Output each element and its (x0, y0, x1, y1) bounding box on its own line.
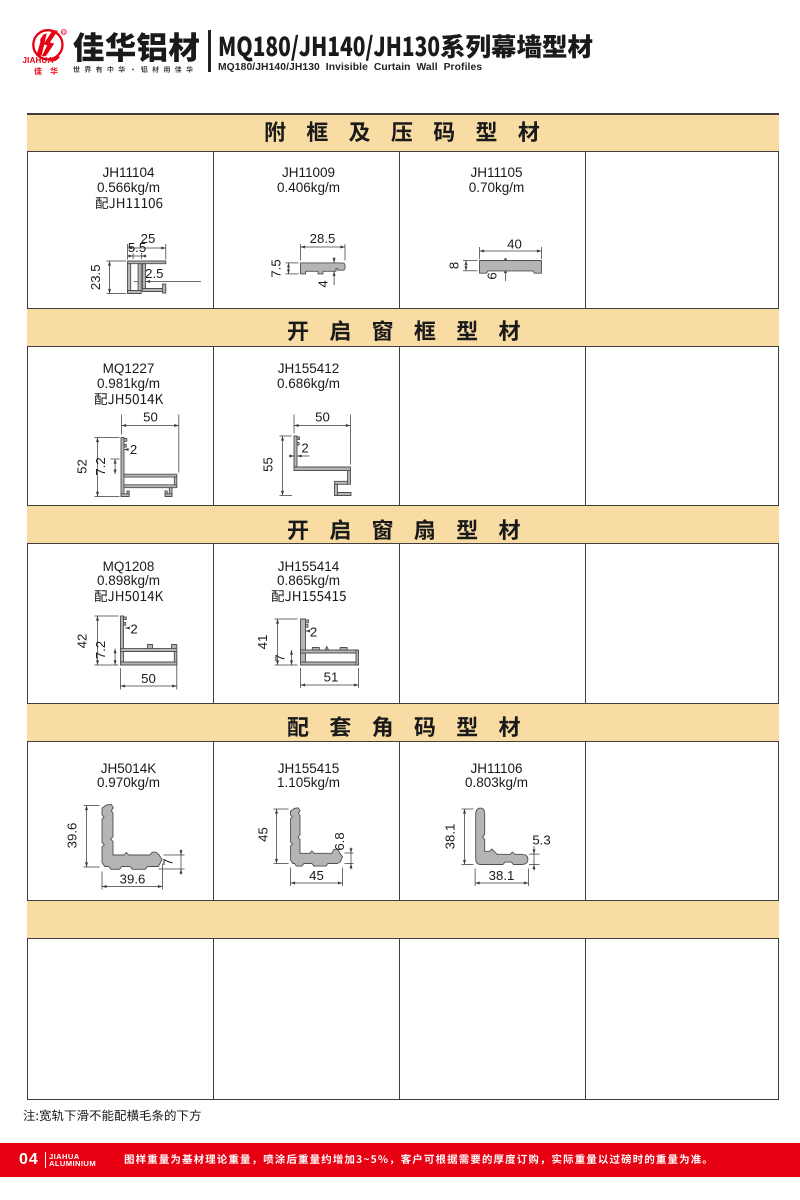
svg-text:2: 2 (129, 442, 136, 457)
svg-text:23.5: 23.5 (88, 264, 103, 290)
svg-text:7: 7 (272, 654, 287, 661)
svg-text:R: R (62, 30, 65, 35)
svg-text:42: 42 (74, 634, 89, 649)
svg-text:50: 50 (143, 409, 158, 424)
svg-text:2: 2 (130, 622, 137, 637)
svg-text:51: 51 (323, 670, 338, 685)
svg-text:39.6: 39.6 (64, 822, 79, 848)
svg-text:2: 2 (301, 440, 308, 455)
svg-text:55: 55 (260, 457, 275, 472)
svg-text:6.8: 6.8 (332, 832, 347, 850)
svg-text:7.2: 7.2 (93, 641, 108, 659)
svg-text:5.3: 5.3 (532, 832, 550, 847)
svg-text:52: 52 (74, 459, 89, 474)
svg-text:45: 45 (309, 868, 324, 883)
svg-text:45: 45 (255, 827, 270, 842)
svg-text:38.1: 38.1 (488, 868, 514, 883)
svg-text:40: 40 (507, 236, 522, 251)
svg-text:39.6: 39.6 (119, 871, 145, 886)
svg-text:38.1: 38.1 (442, 823, 457, 849)
svg-text:50: 50 (315, 409, 330, 424)
svg-text:5.5: 5.5 (127, 240, 145, 255)
svg-text:8: 8 (446, 261, 461, 268)
svg-text:7.2: 7.2 (93, 457, 108, 475)
svg-text:2.5: 2.5 (145, 266, 163, 281)
svg-text:41: 41 (255, 635, 270, 650)
svg-text:4: 4 (315, 280, 330, 287)
svg-text:7: 7 (160, 858, 175, 865)
svg-text:2: 2 (309, 625, 316, 640)
svg-text:28.5: 28.5 (309, 231, 335, 246)
svg-text:7.5: 7.5 (268, 259, 283, 277)
svg-text:50: 50 (141, 671, 156, 686)
